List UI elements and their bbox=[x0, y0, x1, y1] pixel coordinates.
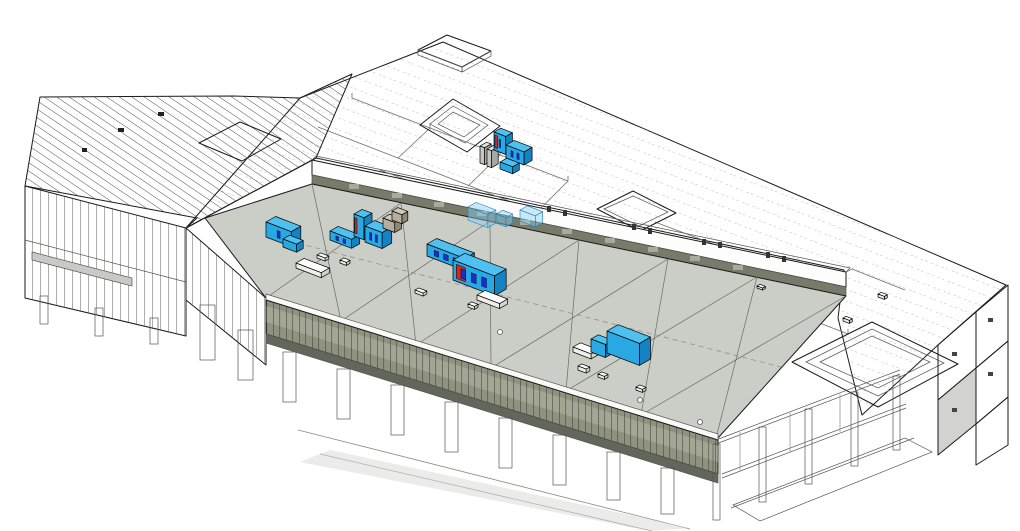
building-3d-view[interactable] bbox=[0, 0, 1020, 531]
model-viewport[interactable] bbox=[0, 0, 1020, 531]
frame-ground-slab bbox=[733, 438, 932, 521]
ground-floor-slab bbox=[300, 450, 690, 531]
frame-back-columns bbox=[740, 394, 840, 470]
